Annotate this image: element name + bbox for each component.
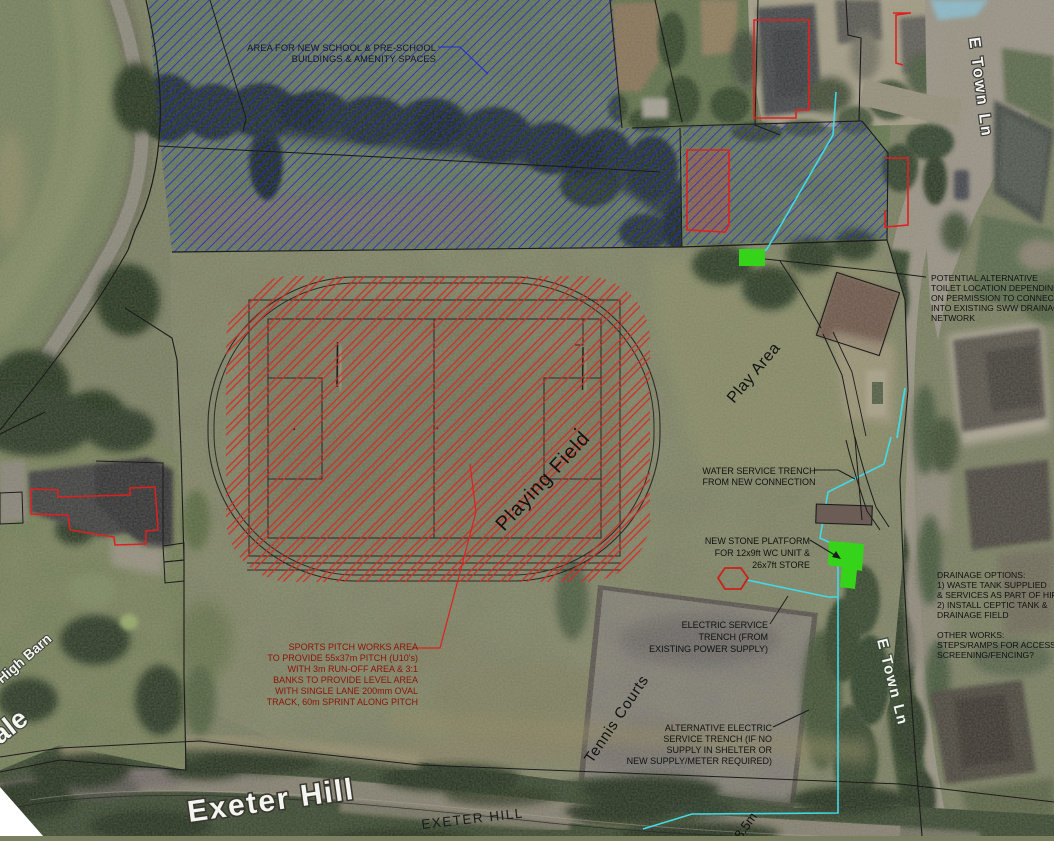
svg-text:BUILDINGS & AMENITY SPACES: BUILDINGS & AMENITY SPACES [292,54,436,64]
svg-text:BANKS TO PROVIDE LEVEL AREA: BANKS TO PROVIDE LEVEL AREA [273,675,418,685]
svg-text:WITH SINGLE LANE 200mm OVAL: WITH SINGLE LANE 200mm OVAL [275,686,418,696]
svg-text:ON PERMISSION TO CONNECT: ON PERMISSION TO CONNECT [931,293,1054,303]
svg-text:SCREENING/FENCING?: SCREENING/FENCING? [937,650,1034,660]
svg-text:NEW STONE PLATFORM: NEW STONE PLATFORM [705,536,810,546]
svg-text:DRAINAGE OPTIONS:: DRAINAGE OPTIONS: [937,570,1025,580]
svg-text:DRAINAGE FIELD: DRAINAGE FIELD [937,610,1009,620]
svg-text:STEPS/RAMPS FOR ACCESS: STEPS/RAMPS FOR ACCESS [937,640,1054,650]
svg-text:26x7ft STORE: 26x7ft STORE [752,560,810,570]
svg-text:NEW SUPPLY/METER REQUIRED): NEW SUPPLY/METER REQUIRED) [627,756,772,766]
svg-text:INTO EXISTING SWW DRAINAGE: INTO EXISTING SWW DRAINAGE [931,303,1054,313]
svg-text:SPORTS PITCH WORKS AREA: SPORTS PITCH WORKS AREA [289,642,418,652]
svg-text:AREA FOR NEW SCHOOL & PRE-SCHO: AREA FOR NEW SCHOOL & PRE-SCHOOL [247,43,436,53]
svg-text:FROM NEW CONNECTION: FROM NEW CONNECTION [703,477,816,487]
svg-text:TOILET LOCATION DEPENDING: TOILET LOCATION DEPENDING [931,283,1054,293]
svg-text:OTHER WORKS:: OTHER WORKS: [937,630,1004,640]
svg-text:ALTERNATIVE ELECTRIC: ALTERNATIVE ELECTRIC [665,723,773,733]
svg-text:WITH 3m RUN-OFF AREA & 3:1: WITH 3m RUN-OFF AREA & 3:1 [287,664,418,674]
svg-text:TO PROVIDE 55x37m PITCH (U10's: TO PROVIDE 55x37m PITCH (U10's) [267,653,418,663]
svg-text:1) WASTE TANK SUPPLIED: 1) WASTE TANK SUPPLIED [937,580,1047,590]
svg-text:2) INSTALL CEPTIC TANK &: 2) INSTALL CEPTIC TANK & [937,600,1048,610]
svg-text:ELECTRIC SERVICE: ELECTRIC SERVICE [682,620,768,630]
svg-text:TRACK, 60m SPRINT ALONG PITCH: TRACK, 60m SPRINT ALONG PITCH [267,697,418,707]
svg-text:WATER SERVICE TRENCH: WATER SERVICE TRENCH [702,466,815,476]
svg-text:& SERVICES AS PART OF HIRE: & SERVICES AS PART OF HIRE [937,590,1054,600]
svg-text:TRENCH (FROM: TRENCH (FROM [699,632,769,642]
svg-text:FOR 12x9ft WC UNIT &: FOR 12x9ft WC UNIT & [715,548,810,558]
svg-text:NETWORK: NETWORK [931,313,975,323]
svg-text:EXISTING POWER SUPPLY): EXISTING POWER SUPPLY) [649,644,768,654]
svg-text:POTENTIAL ALTERNATIVE: POTENTIAL ALTERNATIVE [931,273,1038,283]
svg-text:SERVICE TRENCH (IF NO: SERVICE TRENCH (IF NO [663,734,772,744]
svg-text:SUPPLY IN SHELTER OR: SUPPLY IN SHELTER OR [666,745,772,755]
